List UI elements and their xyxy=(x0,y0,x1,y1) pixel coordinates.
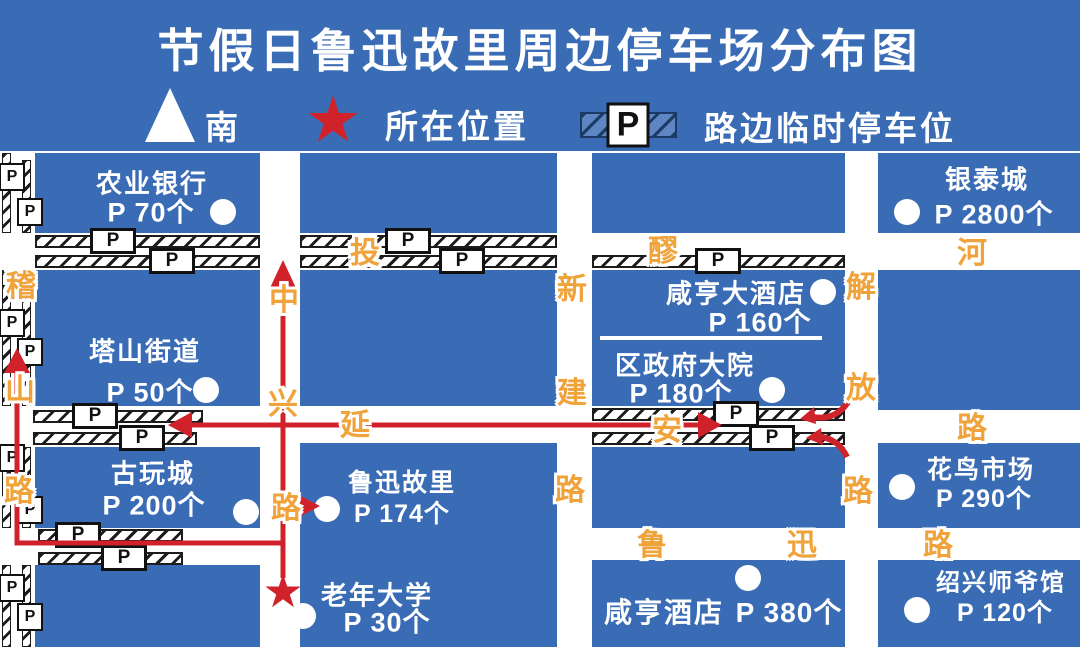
block-divider-line xyxy=(600,336,822,340)
parking-strip xyxy=(33,432,197,445)
venue-name-yintai-city: 银泰城 xyxy=(945,160,1029,197)
parking-p-sign: P xyxy=(17,198,43,226)
road-char-yanan-2: 安 xyxy=(652,405,682,449)
parking-strip xyxy=(592,432,845,445)
road-char-luxun-1: 鲁 xyxy=(637,520,667,564)
venue-name-tashan-street: 塔山街道 xyxy=(89,332,201,369)
parking-p-sign: P xyxy=(695,248,741,274)
block-r4c1 xyxy=(35,565,260,647)
road-char-toulao-1: 投 xyxy=(350,228,380,272)
parking-p-sign: P xyxy=(90,228,136,254)
venue-dot-district-gov xyxy=(759,377,785,403)
legend-p-sign-icon: P xyxy=(607,103,650,148)
venue-dot-shiye-museum xyxy=(904,597,930,623)
parking-p-sign: P xyxy=(385,228,431,254)
venue-dot-xianheng-hotel xyxy=(735,565,761,591)
block-r3c3 xyxy=(592,447,845,528)
road-char-jishan-3: 路 xyxy=(4,466,34,510)
legend-star-icon: ★ xyxy=(304,87,361,151)
parking-strip xyxy=(33,410,203,423)
venue-capacity-antique-city: P 200个 xyxy=(102,484,205,523)
parking-p-sign: P xyxy=(55,522,101,548)
legend-roadside-label: 路边临时停车位 xyxy=(704,102,956,150)
parking-p-sign: P xyxy=(439,248,485,274)
parking-p-sign: P xyxy=(101,545,147,571)
road-char-toulao-2: 醪 xyxy=(648,226,678,270)
parking-p-sign: P xyxy=(149,248,195,274)
current-location-star-icon: ★ xyxy=(262,568,303,614)
parking-p-sign: P xyxy=(0,574,25,602)
block-r2c4 xyxy=(878,270,1080,410)
block-r1c3 xyxy=(592,153,845,233)
parking-p-sign: P xyxy=(119,425,165,451)
venue-dot-antique-city xyxy=(233,499,259,525)
venue-dot-xianheng-grand-hotel xyxy=(810,279,836,305)
road-char-yanan-3: 路 xyxy=(957,403,987,447)
road-char-zhongxing-1: 中 xyxy=(269,275,299,319)
parking-p-sign: P xyxy=(0,309,25,337)
road-char-toulao-3: 河 xyxy=(957,228,987,272)
parking-p-sign: P xyxy=(17,603,43,631)
legend-south-label: 南 xyxy=(205,101,241,149)
road-char-luxun-2: 迅 xyxy=(787,520,817,564)
venue-capacity-xianheng-grand-hotel: P 160个 xyxy=(708,301,811,340)
venue-capacity-senior-university: P 30个 xyxy=(343,601,430,640)
venue-capacity-flower-bird-market: P 290个 xyxy=(936,479,1032,515)
road-char-xinjian-2: 建 xyxy=(557,368,587,412)
venue-capacity-tashan-street: P 50个 xyxy=(106,371,193,410)
road-char-xinjian-3: 路 xyxy=(555,465,585,509)
road-char-xinjian-1: 新 xyxy=(557,264,587,308)
parking-p-sign: P xyxy=(17,338,43,366)
venue-capacity-xianheng-hotel: P 380个 xyxy=(736,591,843,631)
venue-capacity-luxun-hometown: P 174个 xyxy=(354,494,450,530)
venue-dot-luxun-hometown xyxy=(314,496,340,522)
venue-dot-flower-bird-market xyxy=(889,474,915,500)
road-char-luxun-3: 路 xyxy=(923,520,953,564)
venue-name-xianheng-hotel: 咸亨酒店 xyxy=(604,591,724,631)
parking-map: 节假日鲁迅故里周边停车场分布图 南 ★ 所在位置 P 路边临时停车位 农业银行 … xyxy=(0,0,1080,647)
legend-location-label: 所在位置 xyxy=(385,100,529,148)
road-char-zhongxing-2: 兴 xyxy=(268,379,298,423)
parking-strip xyxy=(35,255,260,268)
road-char-zhongxing-3: 路 xyxy=(271,483,301,527)
south-triangle-icon xyxy=(145,88,195,142)
venue-capacity-shiye-museum: P 120个 xyxy=(957,593,1053,629)
road-char-jiefang-2: 放 xyxy=(846,363,876,407)
parking-p-sign: P xyxy=(0,163,25,191)
parking-p-sign: P xyxy=(72,403,118,429)
venue-capacity-nongye-bank: P 70个 xyxy=(107,191,194,230)
parking-p-sign: P xyxy=(749,425,795,451)
venue-capacity-yintai-city: P 2800个 xyxy=(934,193,1053,232)
venue-dot-yintai-city xyxy=(894,199,920,225)
road-char-jiefang-1: 解 xyxy=(846,262,876,306)
venue-dot-nongye-bank xyxy=(210,199,236,225)
road-char-yanan-1: 延 xyxy=(340,400,370,444)
block-r2c2 xyxy=(300,270,557,406)
parking-p-sign: P xyxy=(713,401,759,427)
road-char-jiefang-3: 路 xyxy=(843,466,873,510)
road-char-jishan-1: 稽 xyxy=(6,261,36,305)
venue-dot-tashan-street xyxy=(193,377,219,403)
block-r1c2 xyxy=(300,153,557,233)
road-char-jishan-2: 山 xyxy=(5,365,35,409)
page-title: 节假日鲁迅故里周边停车场分布图 xyxy=(158,15,923,81)
parking-strip xyxy=(300,255,557,268)
parking-strip xyxy=(35,235,260,248)
